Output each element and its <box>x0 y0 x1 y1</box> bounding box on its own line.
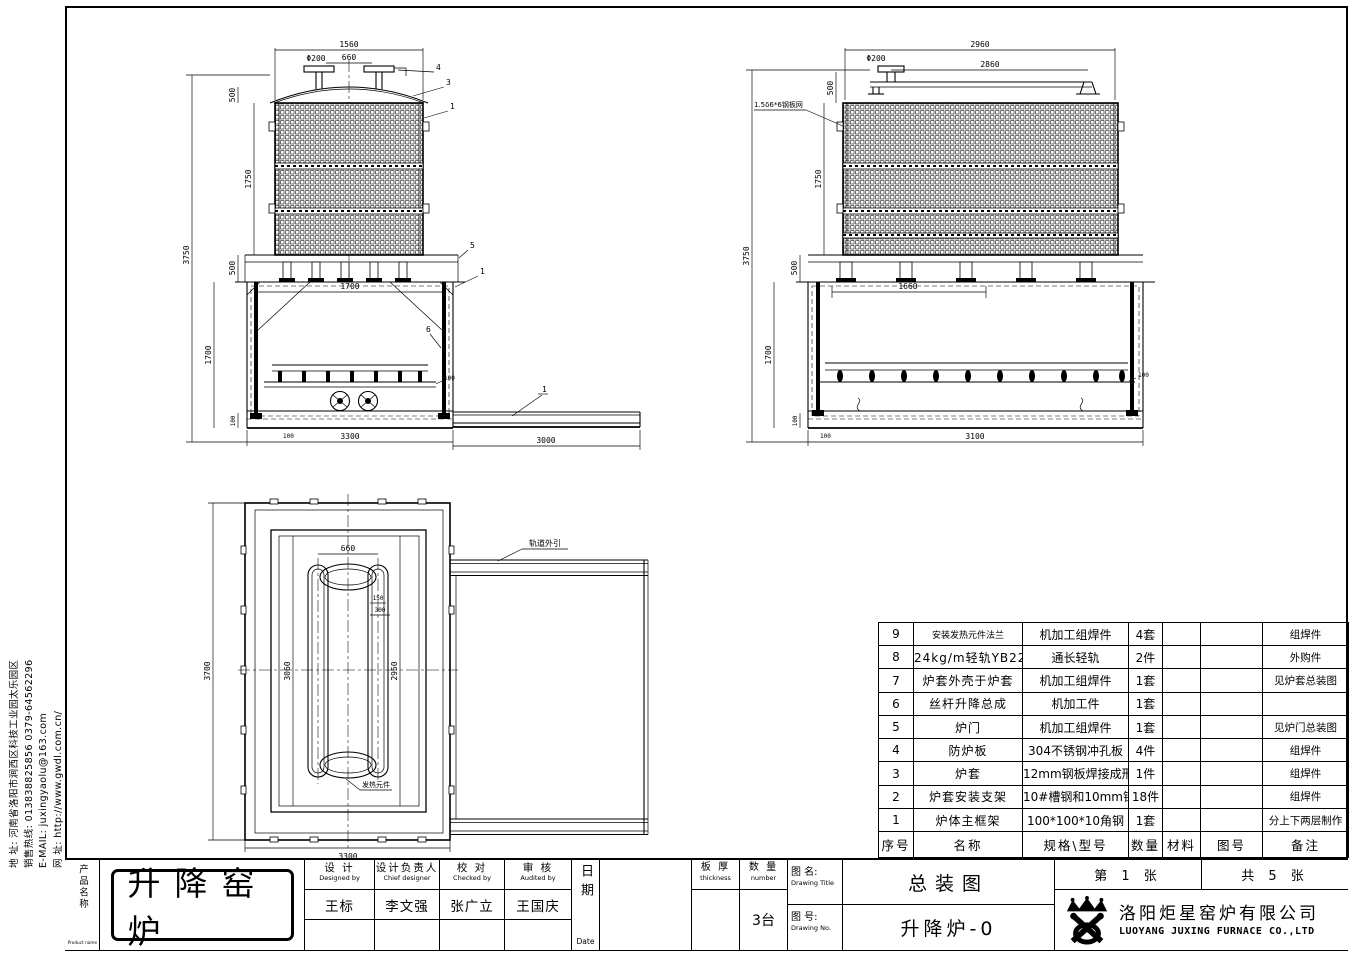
part-remark: 见炉套总装图 <box>1263 669 1349 692</box>
part-material <box>1163 785 1201 808</box>
part-index: 1 <box>879 808 914 831</box>
product-name: 升降窑炉 <box>111 869 294 941</box>
part-material <box>1163 762 1201 785</box>
part-drawing-no <box>1201 646 1263 669</box>
dim-bottom-width: 3300 <box>340 432 359 441</box>
designer-label-cn: 设 计 <box>305 862 374 874</box>
dim-bottom-width: 3100 <box>965 432 984 441</box>
callout-rail: 1 <box>542 385 547 394</box>
checker-label-cn: 校 对 <box>440 862 504 874</box>
part-name: 炉门 <box>914 715 1023 738</box>
dim-rail-span: 2860 <box>980 60 999 69</box>
part-drawing-no <box>1201 785 1263 808</box>
part-drawing-no <box>1201 808 1263 831</box>
part-qty: 1套 <box>1129 669 1163 692</box>
side-bottom-dimensions: 3100 100 <box>808 430 1143 446</box>
part-remark: 组焊件 <box>1263 739 1349 762</box>
part-remark: 组焊件 <box>1263 623 1349 646</box>
part-index: 9 <box>879 623 914 646</box>
dim-inner-width: 1700 <box>340 282 359 291</box>
part-spec: 304不锈钢冲孔板 <box>1023 739 1129 762</box>
date-label-cn: 日期 <box>576 864 595 902</box>
header-name: 名称 <box>914 832 1023 858</box>
part-material <box>1163 715 1201 738</box>
base <box>808 398 1143 428</box>
part-material <box>1163 669 1201 692</box>
part-material <box>1163 623 1201 646</box>
dim-slot-pitch: 300 <box>375 607 386 614</box>
checker-label-en: Checked by <box>440 874 504 882</box>
part-remark: 组焊件 <box>1263 762 1349 785</box>
dim-dome-height: 500 <box>826 81 835 96</box>
drawing-no-value: 升降炉-0 <box>843 905 1054 950</box>
shelf-band <box>245 255 458 282</box>
part-name: 炉套 <box>914 762 1023 785</box>
parts-row: 6 丝杆升降总成 机加工件 1套 <box>879 692 1349 715</box>
mesh-material-label: 1.5δ6*6钢板网 <box>754 100 803 109</box>
part-material <box>1163 739 1201 762</box>
side-elevation-view: 2960 Φ200 2860 1.5δ6*6钢板网 <box>740 30 1170 460</box>
parts-list-table: 9 安装发热元件法兰 机加工组焊件 4套 组焊件 8 24kg/m轻轨YB222… <box>878 622 1348 858</box>
drawing-no-label-cn: 图 号: <box>791 911 839 924</box>
part-remark: 外购件 <box>1263 646 1349 669</box>
side-top-dimensions: 2960 Φ200 2860 <box>845 40 1115 100</box>
rail-label: 轨道外引 <box>529 538 561 548</box>
dim-inner-width: 1660 <box>898 282 917 291</box>
company-name-en: LUOYANG JUXING FURNACE CO.,LTD <box>1119 926 1319 937</box>
title-block: 产品名称 Product name 升降窑炉 设 计Designed by 王标… <box>65 858 1348 950</box>
part-remark <box>1263 692 1349 715</box>
mesh-shell: 1.5δ6*6钢板网 <box>754 100 1124 255</box>
company-column: 第 1 张 共 5 张 洛阳炬星窑炉有限公司 LUOYANG JUXING FU… <box>1055 860 1348 950</box>
front-elevation-view: 1560 Φ200 660 4 3 1 5 1 6 <box>150 30 680 460</box>
part-drawing-no <box>1201 715 1263 738</box>
part-drawing-no <box>1201 692 1263 715</box>
callout-5: 5 <box>470 241 475 250</box>
product-label-en: Product name <box>67 940 97 945</box>
parts-row: 9 安装发热元件法兰 机加工组焊件 4套 组焊件 <box>879 623 1349 646</box>
thickness-label-en: thickness <box>692 874 739 882</box>
part-remark: 组焊件 <box>1263 785 1349 808</box>
quantity-label-cn: 数 量 <box>740 862 787 874</box>
drawing-value-column: 总装图 升降炉-0 <box>843 860 1055 950</box>
callout-6: 6 <box>426 325 431 334</box>
drawing-title-value: 总装图 <box>843 860 1054 905</box>
part-index: 6 <box>879 692 914 715</box>
company-logo <box>1063 895 1111 945</box>
drawing-no-label-en: Drawing No. <box>791 924 839 932</box>
header-material: 材料 <box>1163 832 1201 858</box>
part-qty: 4件 <box>1129 739 1163 762</box>
part-drawing-no <box>1201 762 1263 785</box>
contact-website: 网 址: http://www.gwdl.com.cn/ <box>52 616 67 868</box>
contact-email: E-MAIL: juxingyaolu@163.com <box>37 616 52 868</box>
part-index: 3 <box>879 762 914 785</box>
mesh-shell <box>269 103 429 255</box>
company-row: 洛阳炬星窑炉有限公司 LUOYANG JUXING FURNACE CO.,LT… <box>1055 890 1348 950</box>
callout-1b: 1 <box>480 267 485 276</box>
dim-dome-height: 500 <box>228 88 237 103</box>
parts-row: 4 防炉板 304不锈钢冲孔板 4件 组焊件 <box>879 739 1349 762</box>
product-label-cn: 产品名称 <box>75 864 89 910</box>
auditor-label-en: Audited by <box>505 874 571 882</box>
part-name: 安装发热元件法兰 <box>914 623 1023 646</box>
callout-1: 1 <box>450 102 455 111</box>
checker-column: 校 对Checked by 张广立 <box>440 860 505 950</box>
part-qty: 1套 <box>1129 692 1163 715</box>
signature-blank-cell <box>600 860 692 950</box>
dim-pad-height: 100 <box>283 433 294 440</box>
dim-shelf-height: 500 <box>790 261 799 276</box>
designer-column: 设 计Designed by 王标 <box>305 860 375 950</box>
product-name-cell: 升降窑炉 <box>100 860 305 950</box>
part-index: 7 <box>879 669 914 692</box>
part-name: 防炉板 <box>914 739 1023 762</box>
part-index: 2 <box>879 785 914 808</box>
dim-total-height: 3750 <box>182 245 191 264</box>
element-label-group: 发热元件 <box>346 779 392 790</box>
part-spec: 100*100*10角钢 <box>1023 808 1129 831</box>
thickness-column: 板 厚thickness <box>692 860 740 950</box>
header-remark: 备注 <box>1263 832 1349 858</box>
parts-rows: 9 安装发热元件法兰 机加工组焊件 4套 组焊件 8 24kg/m轻轨YB222… <box>879 623 1349 832</box>
hearth-shelf: 100 <box>818 363 1149 382</box>
part-qty: 4套 <box>1129 623 1163 646</box>
dim-flange-dia: Φ200 <box>866 54 885 63</box>
dim-mesh-height: 1750 <box>244 169 253 188</box>
dim-top-width: 2960 <box>970 40 989 49</box>
dim-base-height: 100 <box>230 415 237 426</box>
dim-door-height: 1700 <box>204 345 213 364</box>
quantity-label-en: number <box>740 874 787 882</box>
part-spec: 机加工组焊件 <box>1023 715 1129 738</box>
dim-shelf-height: 500 <box>228 261 237 276</box>
front-bottom-dimensions: 3300 3000 100 <box>247 430 640 450</box>
drawing-label-column: 图 名:Drawing Title 图 号:Drawing No. <box>788 860 843 950</box>
contact-address: 地 址: 河南省洛阳市涧西区科技工业园太乐园区 <box>8 616 23 868</box>
dim-flange-span: 660 <box>342 53 357 62</box>
auditor-label-cn: 审 核 <box>505 862 571 874</box>
parts-row: 3 炉套 12mm钢板焊接成形 1件 组焊件 <box>879 762 1349 785</box>
dim-rail-length: 3000 <box>536 436 555 445</box>
plan-view: 660 150 300 3060 2950 3700 3300 轨道外引 <box>200 488 665 862</box>
shelf-band <box>808 255 1143 282</box>
product-name-label: 产品名称 Product name <box>65 860 100 950</box>
lower-frame: 1660 <box>796 282 1155 428</box>
chief-designer-name: 李文强 <box>375 890 439 920</box>
part-index: 4 <box>879 739 914 762</box>
part-spec: 机加工件 <box>1023 692 1129 715</box>
header-index: 序号 <box>879 832 914 858</box>
part-drawing-no <box>1201 669 1263 692</box>
part-index: 8 <box>879 646 914 669</box>
part-name: 炉套安装支架 <box>914 785 1023 808</box>
parts-row: 7 炉套外壳于炉套 机加工组焊件 1套 见炉套总装图 <box>879 669 1349 692</box>
checker-name: 张广立 <box>440 890 504 920</box>
auditor-name: 王国庆 <box>505 890 571 920</box>
part-spec: 机加工组焊件 <box>1023 623 1129 646</box>
date-label-en: Date <box>577 937 595 946</box>
part-material <box>1163 808 1201 831</box>
dim-slot-width: 150 <box>373 595 384 602</box>
plan-dimensions: 660 150 300 3060 2950 3700 3300 <box>203 503 450 861</box>
part-drawing-no <box>1201 739 1263 762</box>
callout-3: 3 <box>446 78 451 87</box>
parts-row: 8 24kg/m轻轨YB222-63 通长轻轨 2件 外购件 <box>879 646 1349 669</box>
dim-tray-offset: 100 <box>444 375 455 382</box>
dim-base-height: 100 <box>792 415 799 426</box>
part-qty: 1套 <box>1129 715 1163 738</box>
callout-4: 4 <box>436 63 441 72</box>
sheet-number: 第 1 张 <box>1055 860 1202 889</box>
chief-designer-column: 设计负责人Chief designer 李文强 <box>375 860 440 950</box>
quantity-column: 数 量number 3台 <box>740 860 788 950</box>
parts-row: 5 炉门 机加工组焊件 1套 见炉门总装图 <box>879 715 1349 738</box>
lower-frame: 1700 <box>235 282 465 428</box>
part-material <box>1163 692 1201 715</box>
date-column: 日期 Date <box>572 860 600 950</box>
chief-designer-label-cn: 设计负责人 <box>375 862 439 874</box>
header-drawing-no: 图号 <box>1201 832 1263 858</box>
extension-rails: 轨道外引 <box>450 538 648 835</box>
part-qty: 1件 <box>1129 762 1163 785</box>
trolley-wheels <box>331 392 378 411</box>
part-material <box>1163 646 1201 669</box>
element-label: 发热元件 <box>362 780 390 789</box>
chief-designer-label-en: Chief designer <box>375 874 439 882</box>
part-spec: 10#槽钢和10mm钢板 <box>1023 785 1129 808</box>
sheet-count-row: 第 1 张 共 5 张 <box>1055 860 1348 890</box>
dim-total-height: 3750 <box>742 246 751 265</box>
part-spec: 12mm钢板焊接成形 <box>1023 762 1129 785</box>
thickness-label-cn: 板 厚 <box>692 862 739 874</box>
part-name: 丝杆升降总成 <box>914 692 1023 715</box>
part-remark: 见炉门总装图 <box>1263 715 1349 738</box>
dim-door-height: 1700 <box>764 345 773 364</box>
designer-name: 王标 <box>305 890 374 920</box>
dim-flange-span: 660 <box>341 544 356 553</box>
drawing-title-label-cn: 图 名: <box>791 866 839 879</box>
dim-inner-height: 3060 <box>283 661 292 680</box>
drawing-title-label-en: Drawing Title <box>791 879 839 887</box>
designer-label-en: Designed by <box>305 874 374 882</box>
part-index: 5 <box>879 715 914 738</box>
parts-header-row: 序号 名称 规格\型号 数量 材料 图号 备注 <box>879 832 1349 858</box>
dim-total-height: 3700 <box>203 661 212 680</box>
dim-pad-height: 100 <box>820 433 831 440</box>
dim-tray-offset: 100 <box>1138 372 1149 379</box>
part-spec: 机加工组焊件 <box>1023 669 1129 692</box>
auditor-column: 审 核Audited by 王国庆 <box>505 860 572 950</box>
sheet-total: 共 5 张 <box>1202 860 1348 889</box>
part-qty: 18件 <box>1129 785 1163 808</box>
header-spec: 规格\型号 <box>1023 832 1129 858</box>
dim-flange-dia: Φ200 <box>306 54 325 63</box>
parts-row: 1 炉体主框架 100*100*10角钢 1套 分上下两层制作 <box>879 808 1349 831</box>
part-qty: 1套 <box>1129 808 1163 831</box>
part-remark: 分上下两层制作 <box>1263 808 1349 831</box>
part-drawing-no <box>1201 623 1263 646</box>
dim-top-width: 1560 <box>339 40 358 49</box>
company-name-cn: 洛阳炬星窑炉有限公司 <box>1119 903 1319 926</box>
part-name: 24kg/m轻轨YB222-63 <box>914 646 1023 669</box>
dim-mesh-height: 1750 <box>814 169 823 188</box>
part-name: 炉体主框架 <box>914 808 1023 831</box>
hearth-trolley: 100 <box>264 365 455 387</box>
part-qty: 2件 <box>1129 646 1163 669</box>
contact-sidebar: 地 址: 河南省洛阳市涧西区科技工业园太乐园区 销售热线: 0138388258… <box>8 616 66 868</box>
part-spec: 通长轻轨 <box>1023 646 1129 669</box>
quantity-value: 3台 <box>740 890 787 950</box>
top-flanges <box>304 66 406 89</box>
contact-hotline: 销售热线: 013838825856 0379-64562296 <box>23 616 38 868</box>
company-name: 洛阳炬星窑炉有限公司 LUOYANG JUXING FURNACE CO.,LT… <box>1119 903 1319 937</box>
header-qty: 数量 <box>1129 832 1163 858</box>
thickness-value <box>692 890 739 950</box>
part-name: 炉套外壳于炉套 <box>914 669 1023 692</box>
dim-cavity-height: 2950 <box>390 661 399 680</box>
parts-row: 2 炉套安装支架 10#槽钢和10mm钢板 18件 组焊件 <box>879 785 1349 808</box>
